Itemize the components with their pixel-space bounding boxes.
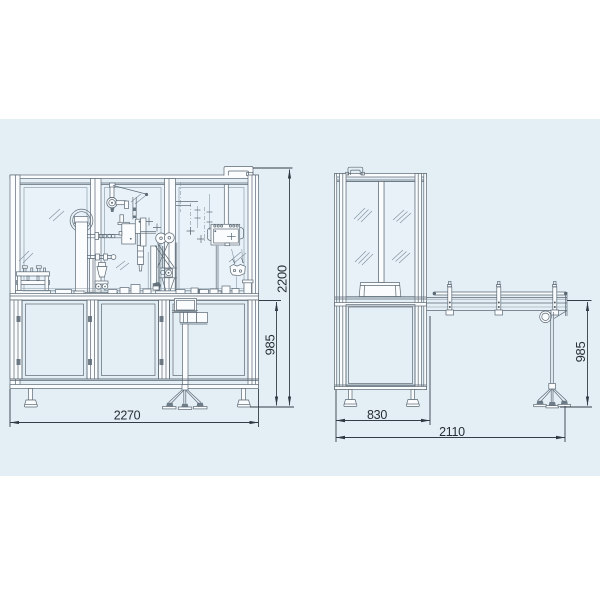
svg-text:2110: 2110: [439, 425, 465, 439]
svg-text:2270: 2270: [114, 409, 141, 423]
svg-text:985: 985: [263, 335, 278, 356]
svg-text:985: 985: [573, 342, 588, 363]
svg-text:830: 830: [367, 408, 387, 422]
svg-text:2200: 2200: [275, 265, 290, 293]
